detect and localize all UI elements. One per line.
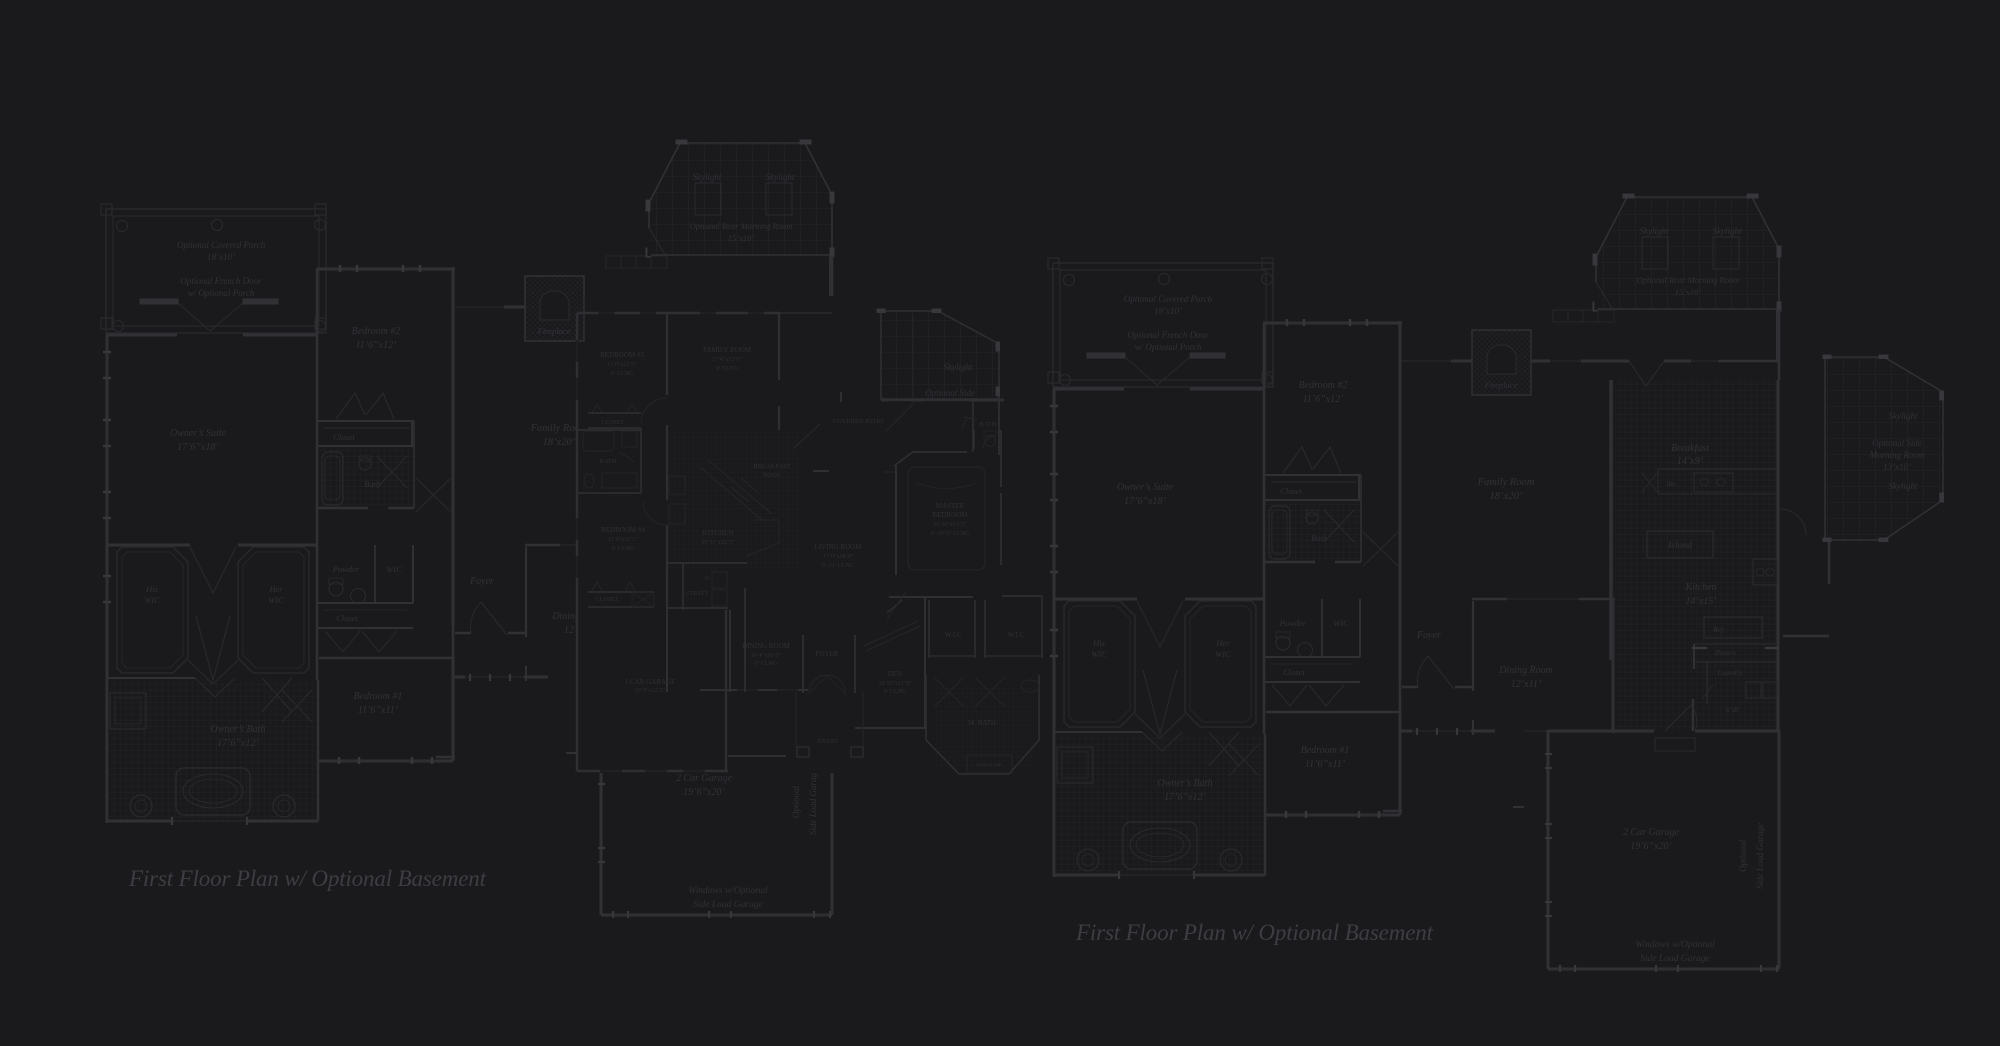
svg-text:18’x10’: 18’x10’ <box>207 252 235 262</box>
svg-text:WIC: WIC <box>386 564 402 574</box>
svg-text:W.I.C.: W.I.C. <box>945 631 963 639</box>
svg-text:9’ CLNG: 9’ CLNG <box>611 371 634 377</box>
svg-text:WIC: WIC <box>268 595 284 605</box>
svg-text:9’ CLNG: 9’ CLNG <box>612 546 635 552</box>
svg-text:2 Car Garage: 2 Car Garage <box>676 773 733 784</box>
svg-text:Optional Covered Porch: Optional Covered Porch <box>177 240 266 250</box>
svg-text:17’0”x18’0”: 17’0”x18’0” <box>823 554 854 560</box>
svg-text:Bedroom #2: Bedroom #2 <box>352 326 401 337</box>
svg-text:BEDROOM: BEDROOM <box>932 511 968 519</box>
svg-text:9’ CLNG: 9’ CLNG <box>755 661 778 667</box>
svg-text:Side Load Garage: Side Load Garage <box>693 900 763 910</box>
svg-text:NOOK: NOOK <box>763 472 782 479</box>
svg-text:17’6”x18’: 17’6”x18’ <box>177 442 219 453</box>
svg-text:UTILITY: UTILITY <box>685 591 709 597</box>
svg-text:11’0”x11’1”: 11’0”x11’1” <box>608 537 638 543</box>
svg-text:Optional Side: Optional Side <box>925 388 975 398</box>
svg-text:CLOSET: CLOSET <box>602 420 625 426</box>
svg-text:FAMILY ROOM: FAMILY ROOM <box>703 346 752 354</box>
svg-text:KITCHEN: KITCHEN <box>703 529 734 537</box>
svg-text:FOYER: FOYER <box>816 650 839 658</box>
svg-text:Windows w/Optional: Windows w/Optional <box>688 886 768 896</box>
svg-text:First Floor Plan w/ Optional: First Floor Plan w/ Optional Basement <box>128 866 487 891</box>
svg-text:w/ Optional Porch: w/ Optional Porch <box>188 288 255 298</box>
svg-text:WIC: WIC <box>144 595 160 605</box>
svg-text:16’10”x13’2”: 16’10”x13’2” <box>933 522 967 528</box>
svg-text:Closet: Closet <box>336 613 358 623</box>
svg-text:His: His <box>145 584 159 594</box>
svg-text:19’8”x12’2”: 19’8”x12’2” <box>635 688 666 694</box>
svg-text:BATH: BATH <box>980 421 997 428</box>
svg-text:9’ CLNG: 9’ CLNG <box>884 689 907 695</box>
svg-text:LIVING ROOM: LIVING ROOM <box>815 543 863 551</box>
svg-text:Bedroom #1: Bedroom #1 <box>354 691 403 702</box>
svg-text:11’0”x12’0”: 11’0”x12’0” <box>607 362 637 368</box>
svg-text:1 CAR GARAGE: 1 CAR GARAGE <box>625 678 676 686</box>
svg-text:11’6”x12’: 11’6”x12’ <box>356 340 398 351</box>
svg-text:ENTRY: ENTRY <box>817 738 839 745</box>
svg-text:BEDROOM #4: BEDROOM #4 <box>601 526 645 534</box>
svg-text:10’4”x16’0”: 10’4”x16’0” <box>751 653 782 659</box>
svg-text:DEN: DEN <box>888 670 902 678</box>
svg-text:window seat: window seat <box>976 763 1002 768</box>
svg-text:Foyer: Foyer <box>469 576 494 587</box>
svg-text:Skylight: Skylight <box>944 362 973 372</box>
svg-text:BEDROOM #3: BEDROOM #3 <box>600 351 644 359</box>
svg-text:Optional Rear Morning Room: Optional Rear Morning Room <box>690 221 793 231</box>
svg-text:Side Load Garage: Side Load Garage <box>808 769 818 835</box>
svg-text:Fireplace: Fireplace <box>537 326 571 336</box>
svg-text:10’10”x11’0”: 10’10”x11’0” <box>878 681 911 687</box>
svg-text:11’6”x11’: 11’6”x11’ <box>358 705 399 716</box>
svg-text:9’-10’6” CLNG: 9’-10’6” CLNG <box>931 531 970 537</box>
svg-text:Her: Her <box>268 584 283 594</box>
svg-text:15’x10’: 15’x10’ <box>728 233 755 243</box>
svg-text:9’ CLNG: 9’ CLNG <box>716 366 739 372</box>
svg-text:W.I.C.: W.I.C. <box>1008 631 1026 639</box>
svg-text:DINING ROOM: DINING ROOM <box>742 642 790 650</box>
svg-text:BATH: BATH <box>600 458 617 465</box>
svg-text:Closet: Closet <box>333 432 355 442</box>
svg-text:17’4”x13’6”: 17’4”x13’6” <box>712 357 743 363</box>
svg-text:Owner’s Bath: Owner’s Bath <box>211 724 266 735</box>
svg-text:MASTER: MASTER <box>936 502 965 510</box>
svg-text:10’11”x12’3”: 10’11”x12’3” <box>701 540 734 546</box>
svg-text:BREAKFAST: BREAKFAST <box>753 463 790 470</box>
svg-text:Powder: Powder <box>332 564 360 574</box>
svg-text:19’6”x20’: 19’6”x20’ <box>683 787 725 798</box>
svg-text:9’-11’ CLNG: 9’-11’ CLNG <box>822 563 855 569</box>
svg-text:W: W <box>704 576 710 582</box>
svg-text:Skylight: Skylight <box>693 172 722 182</box>
svg-text:18’x20’: 18’x20’ <box>543 437 576 448</box>
svg-text:M. BATH: M. BATH <box>968 719 996 727</box>
svg-text:Skylight: Skylight <box>766 172 795 182</box>
svg-text:CLOSET: CLOSET <box>596 597 619 603</box>
svg-text:COVERED PATIO: COVERED PATIO <box>833 418 883 425</box>
svg-text:17’6”x12’: 17’6”x12’ <box>217 738 259 749</box>
svg-text:Optional: Optional <box>791 786 801 819</box>
svg-text:Optional French Door: Optional French Door <box>180 276 262 286</box>
svg-text:Owner’s Suite: Owner’s Suite <box>170 428 227 439</box>
